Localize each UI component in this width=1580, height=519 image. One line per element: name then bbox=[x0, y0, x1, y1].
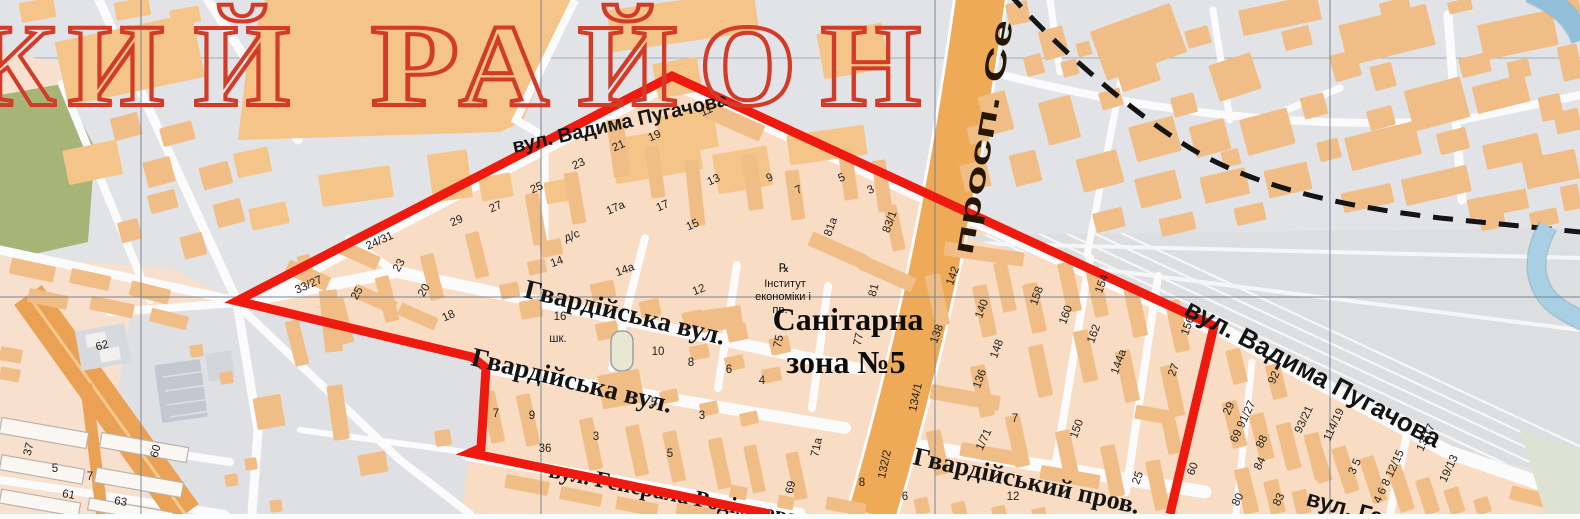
svg-text:6: 6 bbox=[726, 364, 732, 376]
svg-text:5: 5 bbox=[52, 463, 58, 475]
svg-text:4: 4 bbox=[759, 375, 766, 387]
svg-text:61: 61 bbox=[61, 488, 76, 502]
svg-text:Й: Й bbox=[194, 0, 290, 131]
svg-text:3: 3 bbox=[593, 431, 599, 443]
svg-text:Р: Р bbox=[371, 0, 459, 131]
svg-text:10: 10 bbox=[652, 346, 665, 358]
svg-text:9: 9 bbox=[529, 410, 535, 422]
svg-text:А: А bbox=[459, 0, 549, 131]
svg-text:5: 5 bbox=[651, 397, 657, 409]
svg-text:Санітарна: Санітарна bbox=[773, 301, 924, 337]
svg-text:О: О bbox=[699, 0, 796, 131]
svg-text:12: 12 bbox=[1007, 491, 1020, 503]
svg-text:Н: Н bbox=[821, 0, 921, 131]
svg-text:3: 3 bbox=[699, 410, 705, 422]
svg-text:зона №5: зона №5 bbox=[786, 344, 905, 380]
svg-text:7: 7 bbox=[87, 471, 93, 483]
svg-text:℞: ℞ bbox=[779, 261, 790, 275]
svg-text:8: 8 bbox=[859, 477, 865, 489]
svg-text:8: 8 bbox=[688, 357, 694, 369]
svg-text:И: И bbox=[68, 0, 164, 131]
svg-text:36: 36 bbox=[539, 443, 552, 455]
svg-text:5: 5 bbox=[667, 448, 673, 460]
svg-text:16: 16 bbox=[554, 311, 567, 323]
svg-text:7: 7 bbox=[493, 408, 499, 420]
svg-text:7: 7 bbox=[1012, 413, 1018, 425]
svg-text:шк.: шк. bbox=[549, 333, 566, 345]
svg-text:К: К bbox=[0, 0, 56, 131]
svg-text:6: 6 bbox=[902, 491, 908, 503]
svg-text:Інститут: Інститут bbox=[764, 278, 806, 290]
svg-text:Й: Й bbox=[578, 0, 677, 131]
svg-text:63: 63 bbox=[113, 495, 128, 509]
